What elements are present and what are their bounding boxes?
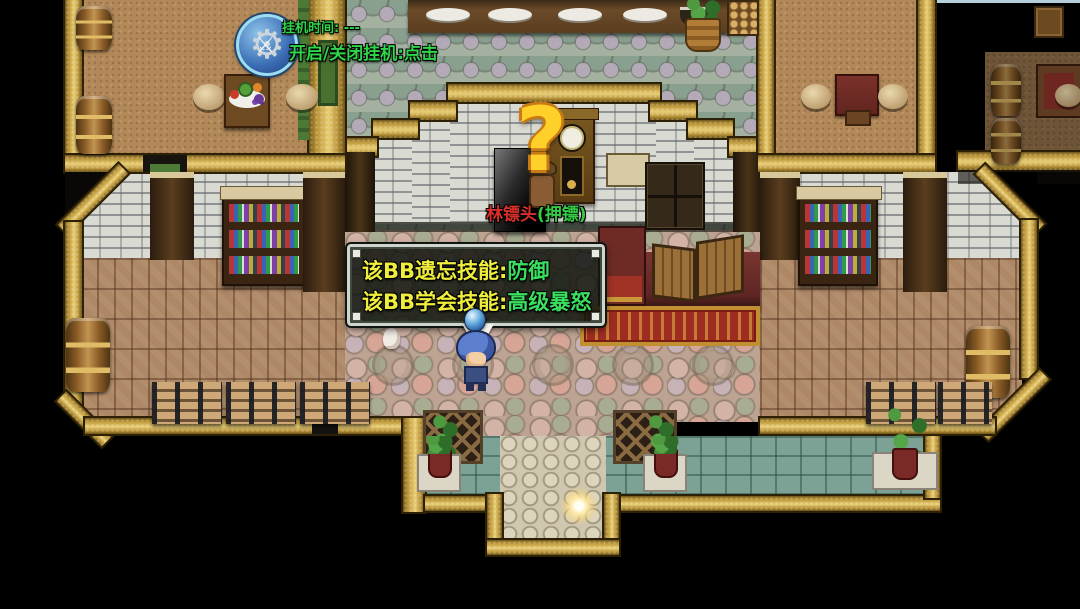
- dialog-corner: [591, 249, 600, 258]
- dialog-line-1: 该BB遗忘技能:防御: [362, 256, 590, 287]
- bench: [226, 382, 296, 424]
- flower-pot: [892, 448, 918, 480]
- tl-south-wall: [65, 155, 345, 172]
- small-table: [845, 110, 871, 126]
- npc-role-text: (押镖): [537, 205, 587, 225]
- stool: [878, 84, 908, 109]
- bookshelf-row: [229, 230, 299, 248]
- swords-glyph-icon: ⚔: [256, 33, 275, 57]
- player-face: [466, 352, 486, 366]
- dialog-corner: [352, 249, 361, 258]
- barrel: [66, 318, 110, 392]
- pot-plant: [424, 436, 454, 454]
- arch-gold-step-right2: [688, 120, 733, 138]
- barrel: [76, 96, 112, 154]
- stool: [286, 84, 318, 110]
- player-leg: [466, 383, 474, 391]
- bookshelf-row: [805, 204, 871, 222]
- bookshelf-row: [805, 256, 871, 274]
- player-leg: [478, 383, 486, 391]
- pot-plant: [650, 436, 680, 454]
- plant-basket: [685, 18, 721, 52]
- game-screen: ⚙ ⚔ 挂机时间: --- 开启/关闭挂机:点击 ? 林镖头(押镖) 该BB遗忘…: [0, 0, 1080, 609]
- potted-plant: [683, 4, 723, 52]
- dialog-pause-orb-icon: [464, 308, 486, 332]
- screen-panel: [696, 234, 744, 300]
- barrel: [991, 64, 1021, 116]
- door-bottom-wall: [487, 540, 619, 555]
- bookshelf: [222, 190, 306, 286]
- plate: [558, 8, 602, 21]
- wood-pillar: [903, 172, 947, 292]
- plate: [623, 8, 667, 21]
- stool: [1055, 84, 1080, 107]
- tr-east-wall: [918, 0, 935, 172]
- tr-south-wall: [758, 155, 935, 172]
- vestibule-south-wall-right: [604, 496, 940, 511]
- arch-gold-step-left1: [410, 102, 456, 120]
- melon: [238, 82, 253, 97]
- npc-name-text: 林镖头: [486, 205, 537, 225]
- rw-east-wall: [1021, 220, 1037, 378]
- barrel: [991, 118, 1021, 164]
- drawer-cabinet: [645, 162, 705, 230]
- plate: [488, 8, 532, 21]
- tl-door-threshold: [150, 164, 180, 172]
- idle-toggle-button[interactable]: 开启/关闭挂机:点击: [289, 39, 438, 64]
- bookshelf: [798, 190, 878, 286]
- tr-west-wall: [758, 0, 774, 158]
- wood-pillar: [303, 172, 345, 292]
- floor-medallion: [612, 344, 654, 386]
- npc-name[interactable]: 林镖头(押镖): [486, 200, 587, 225]
- bookshelf-row: [229, 204, 299, 222]
- red-service-table: [598, 226, 646, 306]
- arch-gold-step-left2: [373, 120, 418, 138]
- fruit-table: [224, 74, 270, 128]
- arch-gold-step-right1: [650, 102, 696, 120]
- bench: [152, 382, 222, 424]
- bench: [300, 382, 370, 424]
- bookshelf-top: [220, 186, 310, 200]
- apple: [230, 90, 239, 99]
- bookshelf-top: [796, 186, 882, 200]
- floor-medallion: [532, 344, 574, 386]
- floor-medallion: [372, 344, 414, 386]
- floor-medallion: [692, 344, 734, 386]
- dialog-line-2-value: 高级暴怒: [507, 290, 591, 314]
- wood-pillar: [150, 172, 194, 260]
- clock-pendulum: [567, 180, 576, 189]
- bookshelf-row: [805, 230, 871, 248]
- dialog-line-1-value: 防御: [507, 259, 549, 283]
- screen-panel: [652, 243, 696, 302]
- idle-timer-label: 挂机时间: ---: [282, 17, 360, 36]
- corridor-pillar-left: [345, 152, 375, 232]
- wood-pillar: [760, 172, 800, 260]
- table-skirt: [602, 276, 642, 302]
- bookshelf-row: [229, 256, 299, 274]
- dialog-corner: [352, 312, 361, 321]
- entrance-sparkle: [560, 487, 598, 525]
- dialog-corner: [591, 312, 600, 321]
- red-carpet: [580, 306, 760, 346]
- player-character: [454, 330, 498, 392]
- grapes: [254, 94, 264, 104]
- wood-screen: [652, 238, 744, 302]
- bench: [938, 382, 992, 424]
- crate: [1034, 6, 1064, 38]
- small-pet: [383, 328, 400, 349]
- beige-panel: [606, 153, 650, 187]
- barrel: [76, 6, 112, 50]
- npc-quest-emote[interactable]: ?: [516, 88, 567, 191]
- plate: [426, 8, 470, 21]
- player-body: [464, 366, 488, 384]
- stool: [193, 84, 225, 110]
- log-crate: [727, 0, 759, 36]
- stool: [801, 84, 831, 109]
- dialog-line-2-label: 该BB学会技能:: [362, 290, 507, 314]
- arch-wall-c-left: [373, 138, 412, 222]
- orange: [253, 83, 262, 92]
- dialog-line-1-label: 该BB遗忘技能:: [362, 259, 507, 283]
